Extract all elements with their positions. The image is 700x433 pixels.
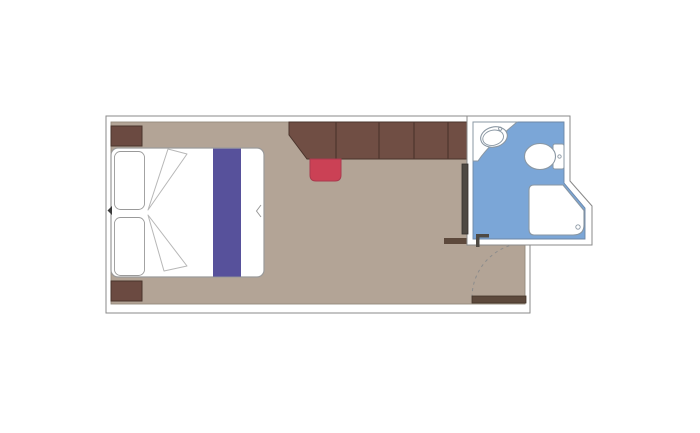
- shower-drain: [576, 225, 580, 229]
- entry-door: [472, 296, 526, 303]
- bathroom: [467, 116, 592, 247]
- floor-plan-page: [0, 0, 700, 433]
- pillow-bottom: [115, 218, 145, 276]
- toilet: [525, 144, 565, 170]
- floor-plan-canvas: [0, 0, 700, 433]
- bed-area: [108, 126, 265, 301]
- wardrobe: [289, 122, 467, 159]
- toilet-flush-button: [558, 155, 561, 158]
- entry-wall-ledge: [444, 238, 467, 244]
- bed-runner: [213, 149, 241, 277]
- nightstand-bottom: [111, 281, 142, 301]
- stool: [310, 159, 341, 181]
- toilet-bowl: [525, 144, 556, 170]
- bathroom-sliding-door: [462, 164, 468, 234]
- nightstand-top: [111, 126, 142, 146]
- pillow-top: [115, 152, 145, 210]
